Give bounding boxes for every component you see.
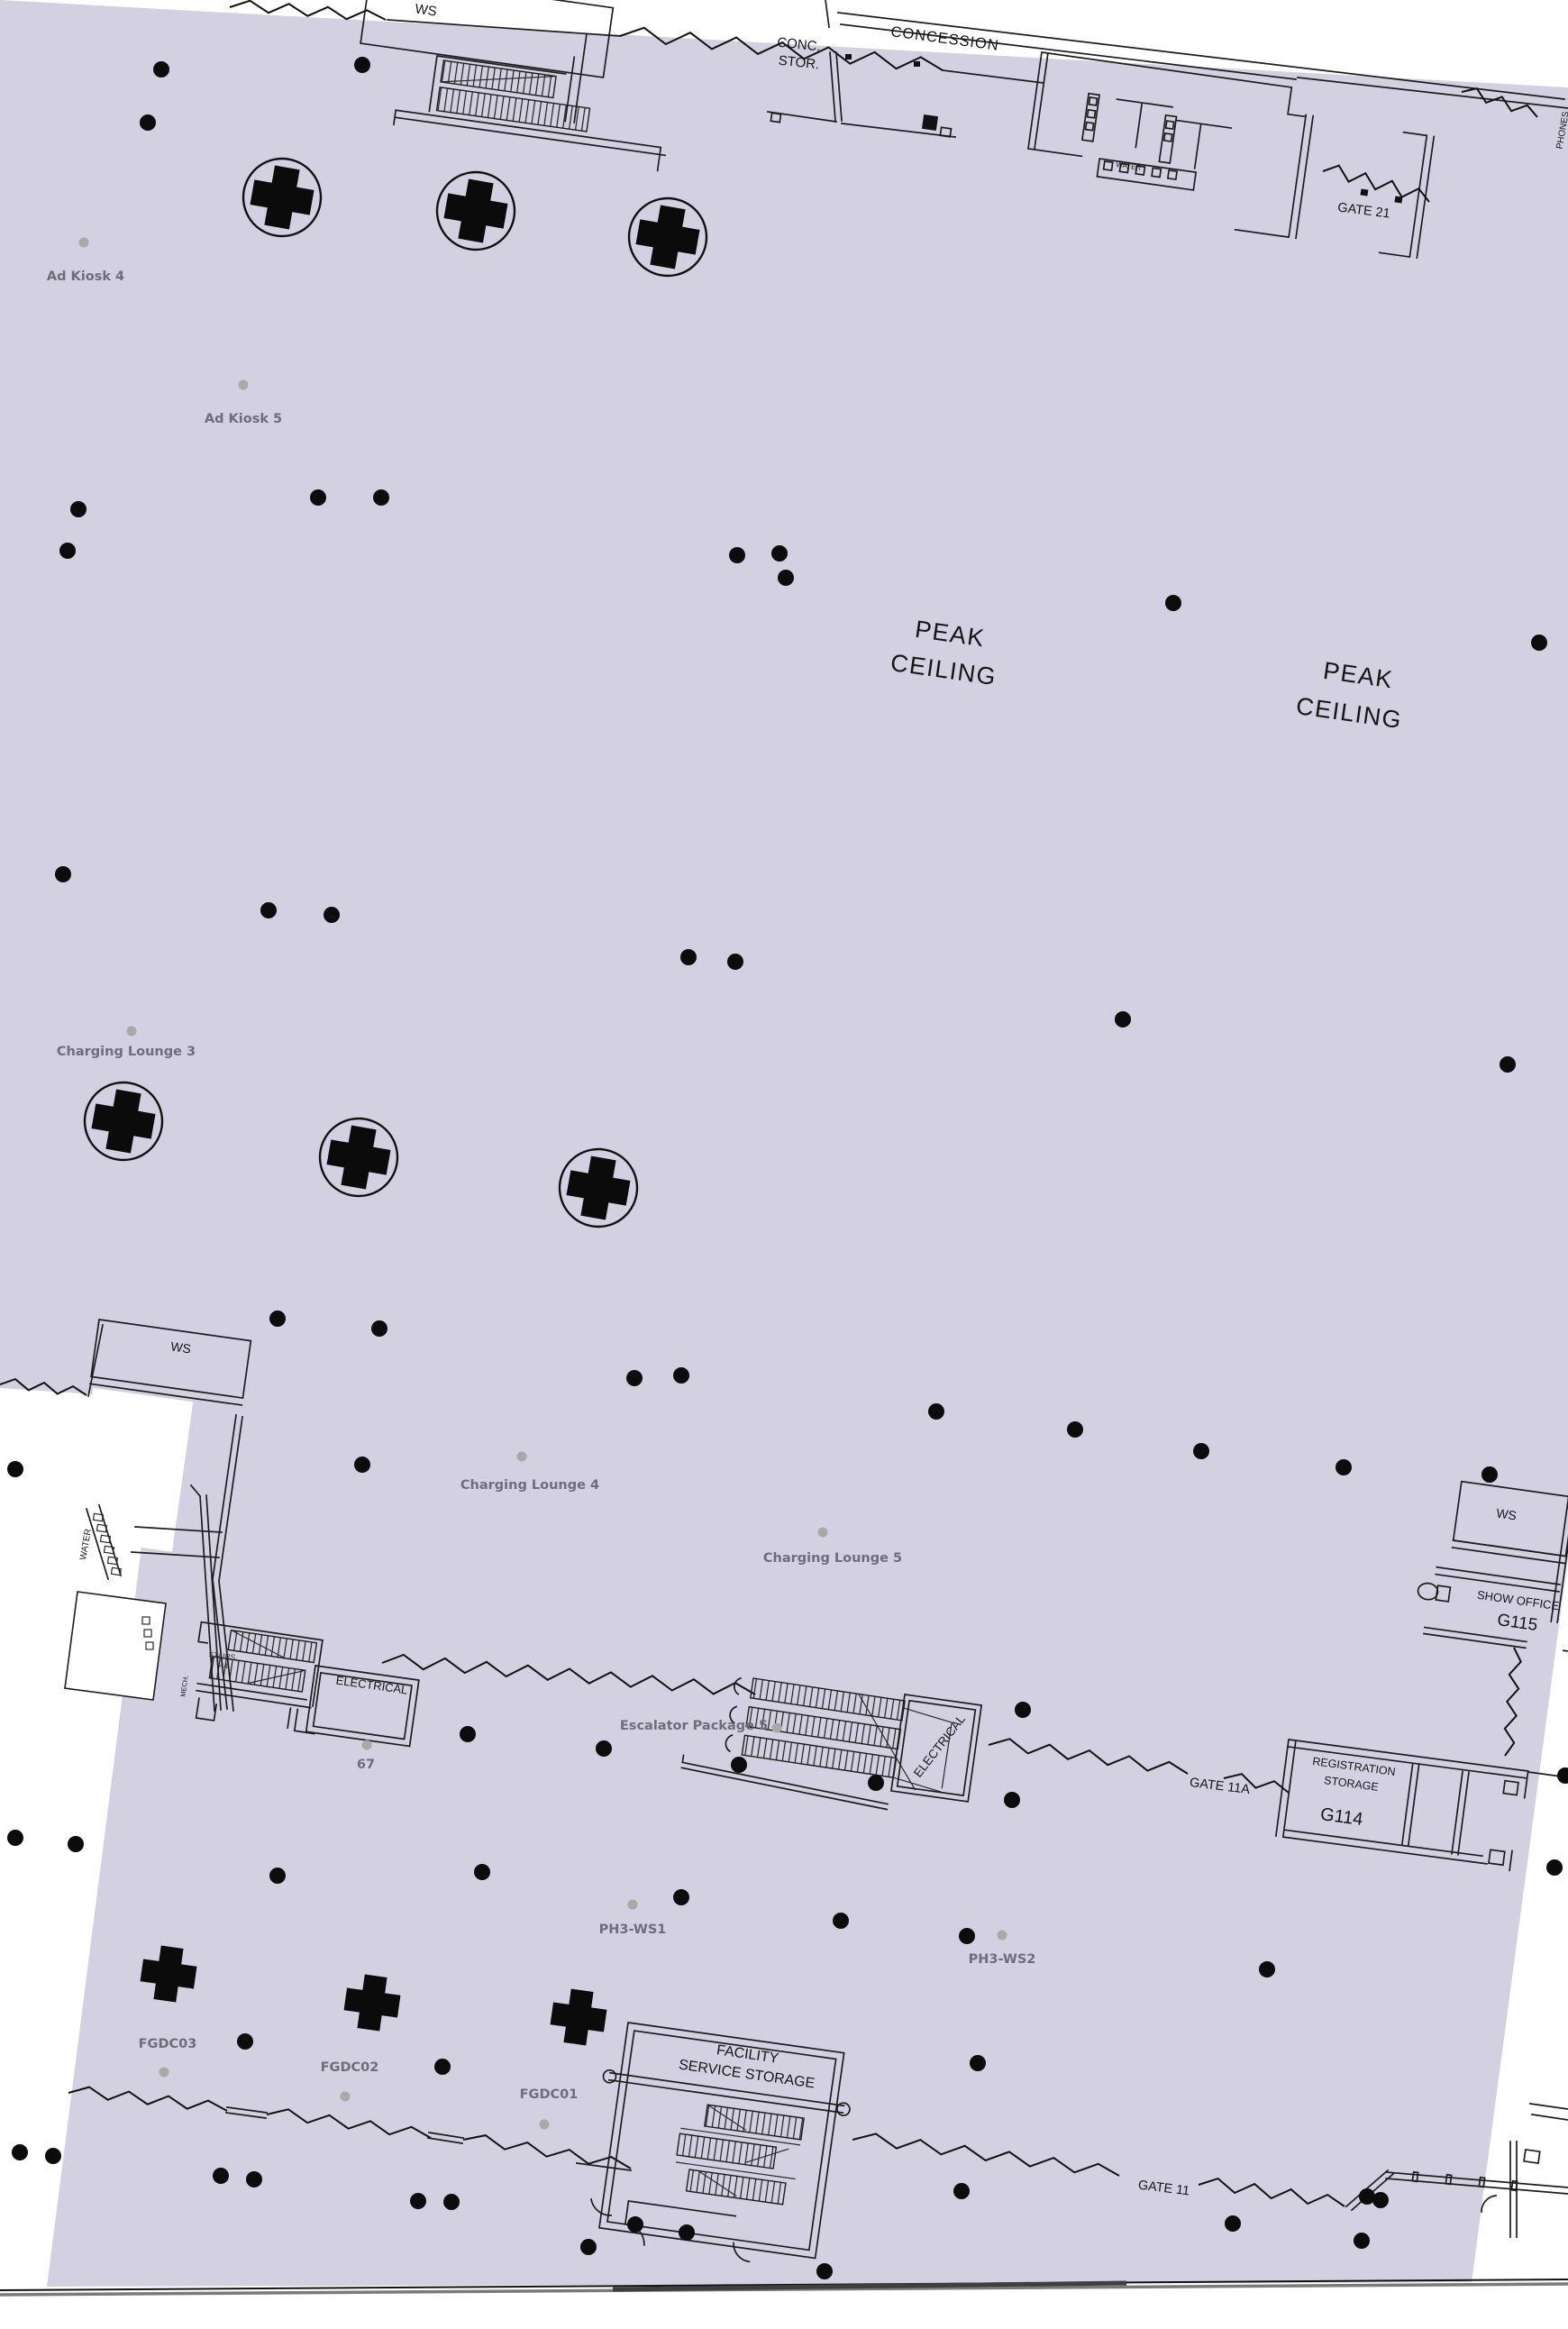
- poi-dot[interactable]: [517, 1452, 527, 1462]
- poi-dot[interactable]: [79, 238, 89, 248]
- column-dot: [1225, 2215, 1241, 2232]
- column-dot: [443, 2194, 460, 2210]
- column-dot: [269, 1311, 286, 1327]
- column-dot: [970, 2055, 986, 2071]
- column-dot: [140, 114, 156, 131]
- column-dot: [727, 954, 743, 970]
- joint-tab: [914, 61, 920, 67]
- poi-label[interactable]: Ad Kiosk 5: [205, 412, 282, 426]
- floor-plan-page: Ad Kiosk 4Ad Kiosk 5Charging Lounge 3Cha…: [0, 0, 1568, 2329]
- column-dot: [474, 1864, 490, 1880]
- column-dot: [1354, 2233, 1370, 2249]
- label-stairs-44b: 44: [219, 1660, 229, 1670]
- column-dot: [673, 1889, 689, 1905]
- column-dot: [1115, 1011, 1131, 1027]
- column-dot: [59, 543, 76, 559]
- column-square: [922, 114, 938, 131]
- left-white-room: [65, 1592, 166, 1700]
- column-dot: [1557, 1767, 1568, 1784]
- column-dot: [354, 57, 370, 73]
- column-dot: [7, 1830, 23, 1846]
- column-dot: [70, 501, 87, 517]
- column-dot: [1165, 595, 1181, 611]
- poi-label[interactable]: FGDC01: [520, 2087, 579, 2102]
- column-dot: [1546, 1859, 1563, 1876]
- label-ws-left: WS: [169, 1339, 192, 1356]
- poi-dot[interactable]: [239, 380, 249, 390]
- bottomright-structure: [1481, 2104, 1568, 2237]
- poi-dot[interactable]: [362, 1740, 372, 1750]
- column-dot: [679, 2224, 695, 2241]
- column-dot: [1531, 635, 1547, 651]
- column-dot: [237, 2033, 253, 2050]
- column-dot: [673, 1367, 689, 1384]
- column-dot: [1500, 1056, 1516, 1073]
- column-dot: [1259, 1961, 1275, 1977]
- poi-label[interactable]: Charging Lounge 4: [460, 1478, 599, 1493]
- column-dot: [771, 545, 788, 562]
- column-dot: [260, 902, 277, 918]
- column-dot: [153, 61, 169, 78]
- concourse-floor-area: [0, 0, 1568, 2287]
- poi-dot[interactable]: [818, 1528, 828, 1538]
- column-dot: [1015, 1702, 1031, 1718]
- column-dot: [213, 2168, 229, 2184]
- poi-dot[interactable]: [540, 2120, 550, 2130]
- column-dot: [55, 866, 71, 882]
- poi-label[interactable]: PH3-WS1: [599, 1923, 667, 1937]
- poi-label[interactable]: FGDC02: [321, 2060, 379, 2075]
- column-dot: [580, 2239, 597, 2255]
- poi-dot[interactable]: [628, 1900, 638, 1910]
- poi-dot[interactable]: [127, 1027, 137, 1037]
- column-dot: [928, 1403, 944, 1420]
- column-dot: [959, 1928, 975, 1944]
- column-dot: [626, 1370, 643, 1386]
- column-dot: [731, 1757, 747, 1773]
- column-dot: [680, 949, 697, 965]
- column-dot: [778, 570, 794, 586]
- joint-tab: [845, 54, 852, 59]
- column-dot: [1372, 2192, 1389, 2208]
- poi-label[interactable]: PH3-WS2: [969, 1952, 1036, 1967]
- wall-tab: [1524, 2150, 1540, 2163]
- label-ws-top: WS: [414, 1, 437, 19]
- column-dot: [410, 2193, 426, 2209]
- poi-label[interactable]: Charging Lounge 5: [763, 1551, 902, 1566]
- column-dot: [1067, 1421, 1083, 1438]
- column-dot: [1004, 1792, 1020, 1808]
- poi-dot[interactable]: [341, 2092, 351, 2102]
- poi-dot[interactable]: [160, 2068, 169, 2078]
- column-dot: [953, 2183, 970, 2199]
- column-dot: [68, 1836, 84, 1852]
- poi-label[interactable]: 67: [357, 1758, 375, 1772]
- poi-label[interactable]: Charging Lounge 3: [57, 1045, 196, 1059]
- poi-dot[interactable]: [998, 1931, 1007, 1941]
- column-dot: [310, 489, 326, 506]
- column-dot: [12, 2144, 28, 2160]
- column-dot: [833, 1913, 849, 1929]
- column-dot: [269, 1868, 286, 1884]
- column-dot: [868, 1775, 884, 1791]
- column-dot: [1193, 1443, 1209, 1459]
- column-dot: [246, 2171, 262, 2187]
- poi-label[interactable]: Ad Kiosk 4: [47, 269, 124, 284]
- column-dot: [460, 1726, 476, 1742]
- column-dot: [7, 1461, 23, 1477]
- column-dot: [434, 2059, 451, 2075]
- label-ws-right: WS: [1495, 1506, 1518, 1523]
- column-dot: [816, 2263, 833, 2279]
- poi-label[interactable]: Escalator Package 5: [620, 1719, 768, 1733]
- floor-plan-svg: Ad Kiosk 4Ad Kiosk 5Charging Lounge 3Cha…: [0, 0, 1568, 2329]
- column-dot: [324, 907, 340, 923]
- column-dot: [596, 1740, 612, 1757]
- column-dot: [354, 1457, 370, 1473]
- column-dot: [627, 2216, 643, 2233]
- joint-tab: [1394, 196, 1402, 203]
- column-dot: [371, 1320, 387, 1337]
- column-dot: [45, 2148, 61, 2164]
- poi-dot[interactable]: [772, 1723, 782, 1733]
- joint-tab: [1360, 188, 1368, 196]
- column-dot: [729, 547, 745, 563]
- column-dot: [373, 489, 389, 506]
- label-concession: CONCESSION: [890, 23, 1000, 54]
- column-dot: [1336, 1459, 1352, 1475]
- column-dot: [1481, 1466, 1498, 1483]
- poi-label[interactable]: FGDC03: [139, 2037, 197, 2051]
